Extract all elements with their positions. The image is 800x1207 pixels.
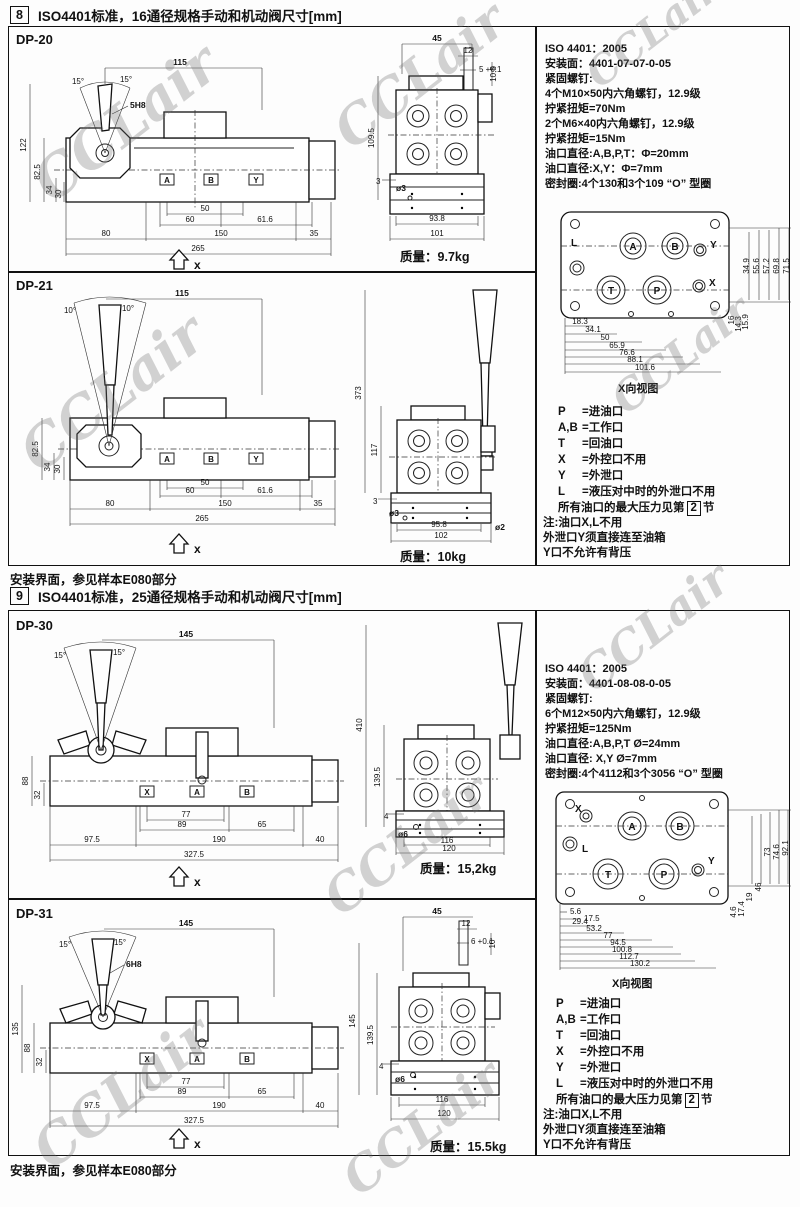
dp30-port-b: B <box>244 788 250 797</box>
legend-desc: =进油口 <box>582 406 623 418</box>
dp21-end-hole: ø3 <box>389 508 399 518</box>
legend-desc: =工作口 <box>580 1014 621 1026</box>
face9-v-dims: 4.6 17.4 19 46 73 74.6 92.1 <box>728 810 791 918</box>
dp31-end-view: 45 12 6 +0.1 10 145 139.5 4 ø6 116 120 <box>345 903 540 1133</box>
legend-item: T=回油口 <box>558 436 715 452</box>
legend-item: X=外控口不用 <box>556 1044 713 1060</box>
legend-item: L=液压对中时的外泄口不用 <box>558 484 715 500</box>
dp20-dim-50: 50 <box>201 204 210 213</box>
max-prefix: 所有油口的最大压力见第 <box>558 502 685 514</box>
legend-item: A,B=工作口 <box>556 1012 713 1028</box>
dp31-end-12: 12 <box>462 919 471 928</box>
face9-port-l: L <box>582 844 588 855</box>
face9-vdim: 19 <box>745 892 754 901</box>
legend-item: L=液压对中时的外泄口不用 <box>556 1076 713 1092</box>
info-line: 拧紧扭矩=15Nm <box>545 132 711 147</box>
legend-desc: =外泄口 <box>580 1062 621 1074</box>
note-line: 外泄口Y须直接连至油箱 <box>543 531 666 546</box>
dp21-body <box>58 305 341 480</box>
mounting-face-8: L A B Y X T P 16 14.3 15.9 34.9 55.6 57.… <box>553 198 793 376</box>
legend-item: Y=外泄口 <box>556 1060 713 1076</box>
dp31-bottom-dimensions: 77 89 65 97.5 190 40 327.5 <box>50 1073 338 1128</box>
face9-port-y: Y <box>708 856 715 867</box>
face8-hdim: 34.1 <box>585 325 601 334</box>
mass-value: 15.5kg <box>468 1140 507 1154</box>
dp20-end-view: 45 12 5 +0.1 10.5 109.5 3 ø3 93.8 101 <box>352 32 527 247</box>
dp30-dim-77: 77 <box>182 810 191 819</box>
face9-vdim: 74.6 <box>772 844 781 860</box>
dp21-dim-60: 60 <box>186 486 195 495</box>
note-line: 注:油口X,L不用 <box>543 1108 666 1123</box>
note-block-9: 注:油口X,L不用 外泄口Y须直接连至油箱 Y口不允许有背压 <box>543 1108 666 1153</box>
dp30-mass: 质量：15,2kg <box>420 858 496 877</box>
face9-hdim: 130.2 <box>630 959 651 968</box>
port-legend-9: P=进油口 A,B=工作口 T=回油口 X=外控口不用 Y=外泄口 L=液压对中… <box>556 996 713 1108</box>
dp20-dim-v3: 30 <box>54 189 63 198</box>
dp30-end-small4: 4 <box>384 812 389 821</box>
dp20-end-101: 101 <box>430 229 444 238</box>
face9-port-b: B <box>676 822 683 833</box>
dp31-dim-v1: 88 <box>23 1043 32 1052</box>
dp30-dp31-divider <box>8 898 535 900</box>
face8-vdim: 55.6 <box>752 258 761 274</box>
info-line: 4个M10×50内六角螺钉，12.9级 <box>545 87 711 102</box>
dp31-angle-left: 15° <box>59 940 71 949</box>
dp20-dim-265: 265 <box>191 244 205 253</box>
legend-key: A,B <box>558 420 582 436</box>
face8-h-dims: 18.3 34.1 50 65.9 76.6 88.1 101.6 <box>565 317 721 374</box>
dp31-end-120: 120 <box>437 1109 451 1118</box>
dp20-dim-35: 35 <box>310 229 319 238</box>
x-axis-arrow: x <box>170 534 201 556</box>
legend-key: P <box>558 404 582 420</box>
legend-desc: =工作口 <box>582 422 623 434</box>
dp31-end-1395: 139.5 <box>366 1024 375 1045</box>
info-line: 2个M6×40内六角螺钉，12.9级 <box>545 117 711 132</box>
dp30-dim-89: 89 <box>178 820 187 829</box>
dp20-port-b: B <box>208 176 214 185</box>
legend-desc: =液压对中时的外泄口不用 <box>582 486 715 498</box>
legend-key: X <box>558 452 582 468</box>
face9-hdim: 53.2 <box>586 924 602 933</box>
dp30-side-view: 15° 15° 145 88 32 X A B 77 89 65 97.5 19… <box>14 628 344 890</box>
legend-desc: =液压对中时的外泄口不用 <box>580 1078 713 1090</box>
legend-item: A,B=工作口 <box>558 420 715 436</box>
note-block-8: 注:油口X,L不用 外泄口Y须直接连至油箱 Y口不允许有背压 <box>543 516 666 561</box>
face8-plate <box>561 212 729 318</box>
info-line: 拧紧扭矩=70Nm <box>545 102 711 117</box>
dp20-dim-616: 61.6 <box>257 215 273 224</box>
mass-value: 15,2kg <box>458 862 497 876</box>
legend-key: Y <box>556 1060 580 1076</box>
dp31-end-small4: 4 <box>379 1062 384 1071</box>
dp21-dim-top: 115 <box>175 288 189 298</box>
dp31-end-145: 145 <box>348 1014 357 1028</box>
face8-vdim: 69.8 <box>772 258 781 274</box>
face9-vdim: 92.1 <box>781 840 790 856</box>
max-suffix: 节 <box>703 502 715 514</box>
dp31-dim-77: 77 <box>182 1077 191 1086</box>
dp30-end-410: 410 <box>355 718 364 732</box>
info-line: 6个M12×50内六角螺钉，12.9级 <box>545 707 723 722</box>
section9-number: 9 <box>10 587 29 605</box>
info-line: 紧固螺钉: <box>545 72 711 87</box>
dp20-dim-v0: 122 <box>19 138 28 152</box>
dp30-dim-v0: 88 <box>21 776 30 785</box>
note-line: Y口不允许有背压 <box>543 546 666 561</box>
face8-hdim: 101.6 <box>635 363 656 372</box>
dp30-axis-label: x <box>194 875 201 889</box>
iso-info-block-9: ISO 4401：2005 安装面：4401-08-08-0-05 紧固螺钉: … <box>545 662 723 782</box>
face8-port-l: L <box>571 238 577 249</box>
dp30-end-body <box>396 623 522 837</box>
dp20-dim-150: 150 <box>214 229 228 238</box>
legend-item: X=外控口不用 <box>558 452 715 468</box>
face8-port-t: T <box>608 286 614 297</box>
mass-value: 9.7kg <box>438 250 470 264</box>
dp20-port-y: Y <box>253 176 259 185</box>
legend-key: T <box>556 1028 580 1044</box>
section8-header: 8 ISO4401标准，16通径规格手动和机动阀尺寸[mm] <box>10 5 342 25</box>
dp31-angle-right: 15° <box>114 938 126 947</box>
legend-key: A,B <box>556 1012 580 1028</box>
dp21-dim-v1: 34 <box>43 462 52 471</box>
mass-label: 质量： <box>400 250 438 264</box>
dp31-dim-65: 65 <box>258 1087 267 1096</box>
dp31-side-view: 15° 15° 6H8 145 135 88 32 X A B 77 89 65… <box>14 915 344 1150</box>
dp30-dim-40: 40 <box>316 835 325 844</box>
max-prefix: 所有油口的最大压力见第 <box>556 1094 683 1106</box>
dp20-dim-top: 115 <box>173 57 187 67</box>
dp20-bottom-dimensions: 50 60 61.6 80 150 35 265 <box>66 202 331 256</box>
face8-vdim: 71.5 <box>782 258 791 274</box>
section-ref-box: 2 <box>687 501 701 516</box>
dp20-end-vr: 10.5 <box>489 66 498 82</box>
info-line: 油口直径: X,Y Ø=7mm <box>545 752 723 767</box>
dp21-side-view: 10° 10° 115 82.5 34 30 A B Y 50 60 61.6 … <box>14 285 344 557</box>
dp30-body <box>40 650 344 806</box>
section8-title: ISO4401标准，16通径规格手动和机动阀尺寸[mm] <box>38 5 342 25</box>
face8-caption: X向视图 <box>618 380 658 396</box>
face8-vdim: 15.9 <box>741 314 750 330</box>
info-line: 油口直径:X,Y：Φ=7mm <box>545 162 711 177</box>
dp30-angle-right: 15° <box>113 648 125 657</box>
face9-hdim: 5.6 <box>570 907 582 916</box>
dp31-port-b: B <box>244 1055 250 1064</box>
dp31-port-a: A <box>194 1055 200 1064</box>
datasheet-page: { "watermark": {"text": "CCLair", "color… <box>0 0 800 1181</box>
face9-vdim: 46 <box>754 882 763 891</box>
legend-max-pressure: 所有油口的最大压力见第2节 <box>558 500 715 516</box>
section9-header: 9 ISO4401标准，25通径规格手动和机动阀尺寸[mm] <box>10 586 342 606</box>
max-suffix: 节 <box>701 1094 713 1106</box>
face8-port-a: A <box>629 242 636 253</box>
info-line: 安装面：4401-07-07-0-05 <box>545 57 711 72</box>
legend-desc: =外控口不用 <box>582 454 646 466</box>
dp30-port-a: A <box>194 788 200 797</box>
x-axis-arrow: x <box>170 250 201 272</box>
face9-port-a: A <box>628 822 635 833</box>
x-axis-arrow: x <box>170 1129 201 1151</box>
dp31-end-45: 45 <box>432 906 442 916</box>
dp31-end-hole: ø6 <box>395 1074 405 1084</box>
legend-desc: =进油口 <box>580 998 621 1010</box>
dp30-angle-left: 15° <box>54 651 66 660</box>
dp20-end-45: 45 <box>432 33 442 43</box>
dp30-end-view: 410 139.5 4 ø6 116 120 <box>348 615 538 855</box>
info-line: 密封圈:4个130和3个109 “O” 型圈 <box>545 177 711 192</box>
dp31-end-vr: 10 <box>488 939 497 948</box>
dp20-dim-v2: 34 <box>45 185 54 194</box>
dp20-end-hole: ø3 <box>396 183 406 193</box>
dp20-side-view: 15° 15° 5H8 115 122 82.5 34 30 A B Y 50 … <box>14 40 344 270</box>
dp21-end-958: 95.8 <box>431 520 447 529</box>
face9-vdim: 17.4 <box>737 901 746 917</box>
face9-caption: X向视图 <box>612 975 652 991</box>
dp21-dim-150: 150 <box>218 499 232 508</box>
legend-key: L <box>558 484 582 500</box>
mass-label: 质量： <box>430 1140 468 1154</box>
dp20-body <box>54 84 341 210</box>
dp31-end-body <box>391 921 500 1095</box>
face8-port-p: P <box>654 286 661 297</box>
dp20-port-a: A <box>164 176 170 185</box>
section9-footer: 安装界面，参见样本E080部分 <box>10 1160 177 1179</box>
dp21-port-y: Y <box>253 455 259 464</box>
info-line: 密封圈:4个4112和3个3056 “O” 型圈 <box>545 767 723 782</box>
dp31-mass: 质量：15.5kg <box>430 1136 506 1155</box>
dp31-pin-label: 6H8 <box>126 959 142 969</box>
note-line: Y口不允许有背压 <box>543 1138 666 1153</box>
legend-item: T=回油口 <box>556 1028 713 1044</box>
dp21-angle-right: 10° <box>122 304 134 313</box>
dp20-pin-label: 5H8 <box>130 100 146 110</box>
dp21-end-hole2: ø2 <box>495 522 505 532</box>
legend-key: P <box>556 996 580 1012</box>
dp21-angle-left: 10° <box>64 306 76 315</box>
dp20-dim-v1: 82.5 <box>33 164 42 180</box>
dp30-bottom-dimensions: 77 89 65 97.5 190 40 327.5 <box>50 806 338 862</box>
info-line: 油口直径:A,B,P,T：Φ=20mm <box>545 147 711 162</box>
dp21-port-a: A <box>164 455 170 464</box>
info-line: 紧固螺钉: <box>545 692 723 707</box>
dp21-bottom-dimensions: 50 60 61.6 80 150 35 265 <box>70 478 335 526</box>
legend-desc: =外控口不用 <box>580 1046 644 1058</box>
face9-port-x: X <box>575 804 582 815</box>
dp21-end-body <box>389 290 497 523</box>
legend-item: Y=外泄口 <box>558 468 715 484</box>
dp31-dim-v0: 135 <box>11 1022 20 1036</box>
section8-footer: 安装界面，参见样本E080部分 <box>10 569 177 588</box>
info-line: 拧紧扭矩=125Nm <box>545 722 723 737</box>
legend-max-pressure: 所有油口的最大压力见第2节 <box>556 1092 713 1108</box>
section8-number: 8 <box>10 6 29 24</box>
dp30-end-120: 120 <box>442 844 456 853</box>
iso-info-block-8: ISO 4401：2005 安装面：4401-07-07-0-05 紧固螺钉: … <box>545 42 711 192</box>
dp20-dim-80: 80 <box>102 229 111 238</box>
dp31-dim-89: 89 <box>178 1087 187 1096</box>
dp20-angle-right: 15° <box>120 75 132 84</box>
legend-desc: =回油口 <box>580 1030 621 1042</box>
note-line: 注:油口X,L不用 <box>543 516 666 531</box>
dp21-end-373: 373 <box>354 386 363 400</box>
legend-key: T <box>558 436 582 452</box>
dp20-end-938: 93.8 <box>429 214 445 223</box>
face8-vdim: 57.2 <box>762 258 771 274</box>
face9-vdim: 73 <box>763 847 772 856</box>
dp21-dim-35: 35 <box>314 499 323 508</box>
dp20-end-small3: 3 <box>376 177 381 186</box>
section9-title: ISO4401标准，25通径规格手动和机动阀尺寸[mm] <box>38 586 342 606</box>
dp21-mass: 质量：10kg <box>400 546 466 565</box>
face8-port-y: Y <box>710 240 717 251</box>
dp21-dim-v2: 30 <box>53 464 62 473</box>
dp21-dim-616: 61.6 <box>257 486 273 495</box>
mass-value: 10kg <box>438 550 467 564</box>
dp31-axis-label: x <box>194 1137 201 1151</box>
dp20-angle-left: 15° <box>72 77 84 86</box>
info-line: ISO 4401：2005 <box>545 662 723 677</box>
mass-label: 质量： <box>420 862 458 876</box>
face8-port-b: B <box>671 242 678 253</box>
mounting-face-9: X A B L T P Y 4.6 17.4 19 46 73 74.6 92.… <box>548 782 793 972</box>
legend-desc: =回油口 <box>582 438 623 450</box>
info-line: ISO 4401：2005 <box>545 42 711 57</box>
dp30-dim-top: 145 <box>179 629 193 639</box>
dp20-axis-label: x <box>194 258 201 272</box>
face9-port-p: P <box>661 870 668 881</box>
info-line: 油口直径:A,B,P,T Ø=24mm <box>545 737 723 752</box>
dp31-dim-top: 145 <box>179 918 193 928</box>
dp31-port-x: X <box>144 1055 150 1064</box>
dp21-dim-50: 50 <box>201 478 210 487</box>
dp30-dim-v1: 32 <box>33 790 42 799</box>
face8-port-x: X <box>709 278 716 289</box>
dp31-dim-40: 40 <box>316 1101 325 1110</box>
legend-item: P=进油口 <box>556 996 713 1012</box>
dp21-dim-80: 80 <box>106 499 115 508</box>
dp20-end-12: 12 <box>464 46 473 55</box>
dp30-end-hole: ø6 <box>398 829 408 839</box>
legend-key: X <box>556 1044 580 1060</box>
dp30-dim-65: 65 <box>258 820 267 829</box>
legend-desc: =外泄口 <box>582 470 623 482</box>
face9-h-dims: 5.6 17.5 29.4 53.2 77 94.5 100.8 112.7 1… <box>560 904 716 970</box>
face8-v-dims: 16 14.3 15.9 34.9 55.6 57.2 69.8 71.5 <box>727 228 791 332</box>
dp20-end-vl: 109.5 <box>367 127 376 148</box>
note-line: 外泄口Y须直接连至油箱 <box>543 1123 666 1138</box>
face9-port-t: T <box>605 870 611 881</box>
legend-item: P=进油口 <box>558 404 715 420</box>
dp21-axis-label: x <box>194 542 201 556</box>
dp31-dim-975: 97.5 <box>84 1101 100 1110</box>
dp31-end-116: 116 <box>436 1095 449 1104</box>
dp21-port-b: B <box>208 455 214 464</box>
dp30-dim-190: 190 <box>212 835 226 844</box>
dp31-dim-v2: 32 <box>35 1057 44 1066</box>
dp31-dim-3275: 327.5 <box>184 1116 205 1125</box>
dp21-end-view: 373 117 3 ø3 95.8 ø2 102 <box>345 278 530 543</box>
info-line: 安装面：4401-08-08-0-05 <box>545 677 723 692</box>
dp30-dim-3275: 327.5 <box>184 850 205 859</box>
dp20-dim-60: 60 <box>186 215 195 224</box>
dp21-end-102: 102 <box>434 531 448 540</box>
port-legend-8: P=进油口 A,B=工作口 T=回油口 X=外控口不用 Y=外泄口 L=液压对中… <box>558 404 715 516</box>
dp30-end-1395: 139.5 <box>373 766 382 787</box>
section-ref-box: 2 <box>685 1093 699 1108</box>
dp21-dim-265: 265 <box>195 514 209 523</box>
dp21-dim-v0: 82.5 <box>31 441 40 457</box>
mass-label: 质量： <box>400 550 438 564</box>
legend-key: Y <box>558 468 582 484</box>
dp31-dim-190: 190 <box>212 1101 226 1110</box>
x-axis-arrow: x <box>170 867 201 889</box>
dp30-port-x: X <box>144 788 150 797</box>
legend-key: L <box>556 1076 580 1092</box>
face8-vdim: 34.9 <box>742 258 751 274</box>
section8-column-divider <box>535 26 537 566</box>
dp20-mass: 质量：9.7kg <box>400 246 469 265</box>
dp21-end-117: 117 <box>370 443 379 456</box>
dp20-dp21-divider <box>8 271 535 273</box>
dp21-end-small3: 3 <box>373 497 378 506</box>
dp30-dim-975: 97.5 <box>84 835 100 844</box>
